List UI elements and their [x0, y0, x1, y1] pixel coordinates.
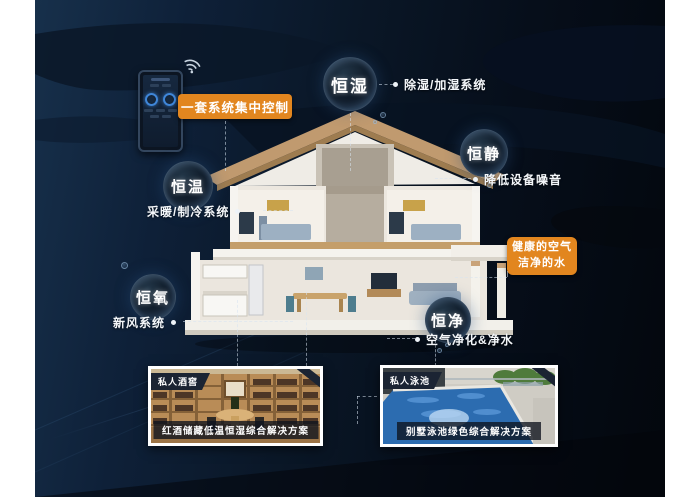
- bullet-dot: [473, 177, 478, 182]
- central-control-label: 一套系统集中控制: [178, 94, 292, 119]
- bullet-dot: [415, 337, 420, 342]
- connector-line: [357, 396, 377, 397]
- connector-line: [455, 277, 507, 278]
- photo-pool: 私人泳池 别墅泳池绿色综合解决方案: [380, 365, 558, 447]
- bullet-dot: [235, 209, 240, 214]
- phone: [138, 70, 183, 152]
- note-oxygen: 新风系统: [113, 314, 176, 331]
- highlight-line-1: 健康的空气: [512, 240, 572, 256]
- note-oxygen-text: 新风系统: [113, 314, 165, 331]
- phone-screen: [143, 75, 178, 147]
- bullet-dot: [171, 320, 176, 325]
- wine-cellar-badge: 私人酒窖: [151, 373, 210, 390]
- decor-bubble: [437, 348, 442, 353]
- pool-caption: 别墅泳池绿色综合解决方案: [397, 422, 541, 440]
- connector-line: [225, 121, 226, 171]
- note-purity: 空气净化&净水: [415, 331, 514, 348]
- pool-badge: 私人泳池: [383, 372, 442, 389]
- wifi-icon: [181, 56, 201, 74]
- note-purity-text: 空气净化&净水: [426, 331, 514, 348]
- decor-bubble: [380, 112, 386, 118]
- air-water-highlight-box: 健康的空气 洁净的水: [507, 237, 577, 275]
- connector-line: [263, 210, 293, 211]
- connector-line: [237, 300, 238, 366]
- connector-line: [379, 84, 393, 85]
- infographic-frame: 一套系统集中控制 健康的空气 洁净的水 恒湿 恒静 恒温 恒氧 恒净: [0, 0, 700, 497]
- phone-dial-left: [145, 93, 158, 106]
- phone-dial-right: [163, 93, 176, 106]
- connector-line: [350, 113, 351, 171]
- decor-bubble: [373, 120, 377, 124]
- phone-app-titlebar: [151, 78, 170, 81]
- connector-line: [306, 292, 307, 366]
- note-quiet: 降低设备噪音: [473, 171, 562, 188]
- bubble-humidity: 恒湿: [323, 57, 377, 111]
- note-humidity: 除湿/加湿系统: [393, 76, 486, 93]
- infographic-stage: 一套系统集中控制 健康的空气 洁净的水 恒湿 恒静 恒温 恒氧 恒净: [35, 0, 665, 497]
- connector-line: [435, 178, 471, 179]
- photo-wine-cellar: 私人酒窖 红酒储藏低温恒湿综合解决方案: [148, 366, 323, 446]
- note-temperature: 采暖/制冷系统: [147, 203, 240, 220]
- connector-line: [183, 321, 293, 322]
- highlight-line-2: 洁净的水: [518, 256, 566, 272]
- note-temperature-text: 采暖/制冷系统: [147, 203, 229, 220]
- connector-line: [507, 271, 508, 277]
- decor-bubble: [121, 262, 128, 269]
- connector-line: [357, 396, 358, 424]
- bullet-dot: [393, 82, 398, 87]
- wine-cellar-caption: 红酒储藏低温恒湿综合解决方案: [153, 421, 318, 439]
- connector-line: [387, 338, 415, 339]
- note-quiet-text: 降低设备噪音: [484, 171, 562, 188]
- bubble-quiet: 恒静: [460, 129, 508, 177]
- note-humidity-text: 除湿/加湿系统: [404, 76, 486, 93]
